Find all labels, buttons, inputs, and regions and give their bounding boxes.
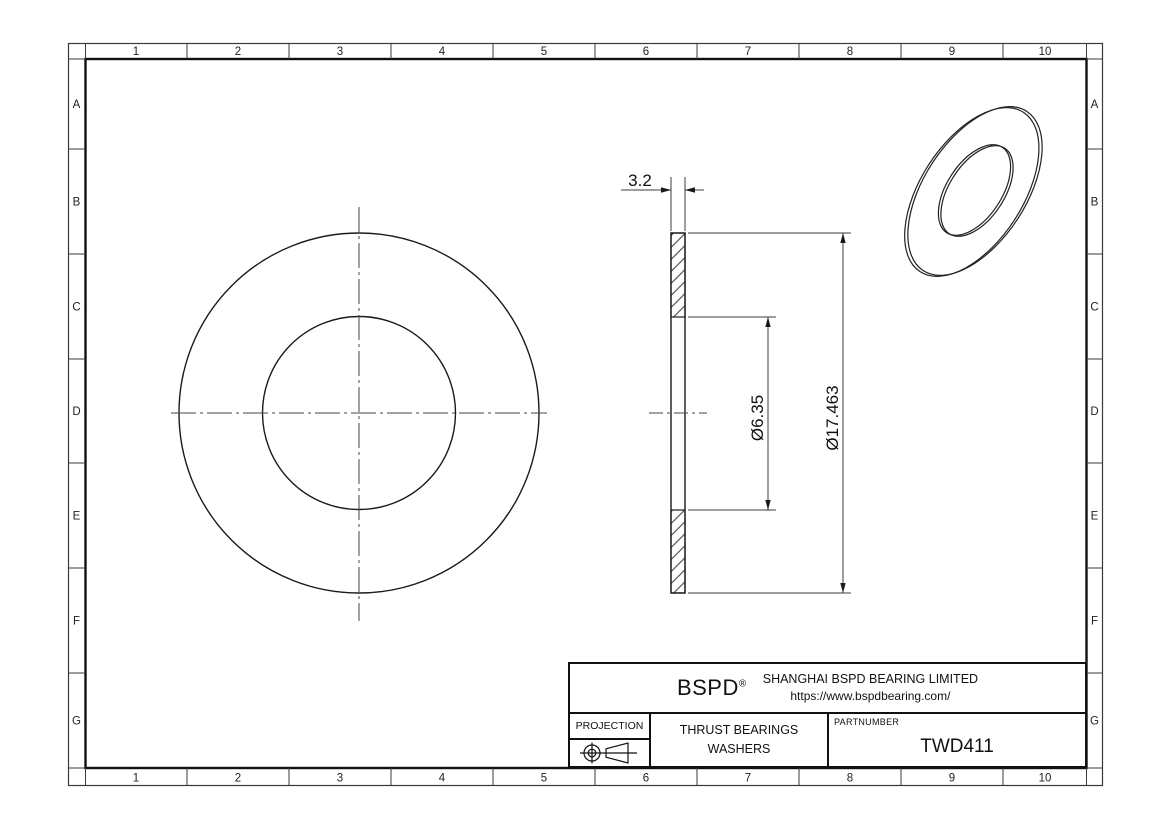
ruler-label: E	[73, 511, 81, 523]
company-name: SHANGHAI BSPD BEARING LIMITED	[763, 671, 978, 688]
ruler-label: F	[73, 616, 80, 628]
partnumber-label: PARTNUMBER	[834, 717, 899, 727]
projection-label: PROJECTION	[570, 714, 649, 740]
front-view	[171, 207, 547, 621]
registered-trademark: ®	[739, 679, 747, 690]
ruler-label: D	[1090, 406, 1098, 418]
ruler-label: B	[73, 197, 81, 209]
description-line1: THRUST BEARINGS	[680, 721, 799, 740]
bore-dimension-text: Ø6.35	[748, 395, 767, 441]
ruler-label: G	[1090, 716, 1099, 728]
ruler-label: B	[1091, 197, 1099, 209]
description-line2: WASHERS	[708, 740, 771, 759]
dimension-outer: Ø17.463	[823, 233, 846, 593]
section-view: 3.2 Ø6.35 Ø17.463	[621, 171, 851, 593]
ruler-label: C	[1090, 302, 1098, 314]
ruler-label: 6	[643, 773, 649, 785]
company-website: https://www.bspdbearing.com/	[763, 688, 978, 704]
ruler-label: C	[72, 302, 80, 314]
brand-name: BSPD	[677, 675, 739, 700]
ruler-label: D	[72, 406, 80, 418]
isometric-view	[877, 84, 1069, 300]
ruler-label: 8	[847, 46, 853, 58]
projection-cell: PROJECTION	[570, 714, 651, 766]
dimension-bore: Ø6.35	[748, 317, 771, 510]
dimension-thickness: 3.2	[621, 171, 704, 193]
ruler-label: 10	[1039, 773, 1052, 785]
company-block: SHANGHAI BSPD BEARING LIMITED https://ww…	[763, 671, 978, 704]
ruler-label: 2	[235, 773, 241, 785]
ruler-label: A	[1091, 99, 1099, 111]
ruler-label: 2	[235, 46, 241, 58]
title-block: BSPD® SHANGHAI BSPD BEARING LIMITED http…	[568, 662, 1087, 768]
ruler-top: 1 2 3 4 5 6 7 8 9 10	[133, 44, 1052, 60]
ruler-label: G	[72, 716, 81, 728]
ruler-bottom: 1 2 3 4 5 6 7 8 9 10	[133, 768, 1052, 786]
section-hatch-bottom	[671, 510, 685, 593]
ruler-label: 1	[133, 773, 139, 785]
ruler-label: 3	[337, 773, 343, 785]
ruler-label: 10	[1039, 46, 1052, 58]
outer-dimension-text: Ø17.463	[823, 385, 842, 450]
title-block-company-row: BSPD® SHANGHAI BSPD BEARING LIMITED http…	[570, 664, 1085, 714]
partnumber-cell: PARTNUMBER TWD411	[829, 714, 1085, 766]
ruler-label: F	[1091, 616, 1098, 628]
partnumber-value: TWD411	[829, 736, 1085, 758]
part-description-cell: THRUST BEARINGS WASHERS	[651, 714, 829, 766]
ruler-label: 6	[643, 46, 649, 58]
brand-logo: BSPD®	[677, 675, 747, 701]
ruler-label: 3	[337, 46, 343, 58]
ruler-label: 4	[439, 46, 446, 58]
ruler-label: 7	[745, 46, 751, 58]
ruler-label: 8	[847, 773, 853, 785]
ruler-right: A B C D E F G	[1087, 99, 1103, 728]
third-angle-projection-icon	[579, 740, 641, 766]
ruler-label: 9	[949, 46, 955, 58]
thickness-dimension-text: 3.2	[628, 171, 652, 190]
title-block-bottom-row: PROJECTION THRUST BEARINGS WA	[570, 714, 1085, 766]
ruler-label: 5	[541, 46, 547, 58]
projection-symbol	[570, 740, 649, 766]
section-hatch-top	[671, 233, 685, 317]
ruler-left: A B C D E F G	[69, 99, 86, 728]
ruler-label: 7	[745, 773, 751, 785]
ruler-label: 9	[949, 773, 955, 785]
drawing-sheet: 1 2 3 4 5 6 7 8 9 10 1 2 3 4 5	[0, 0, 1170, 827]
ruler-label: 5	[541, 773, 547, 785]
ruler-label: 4	[439, 773, 446, 785]
ruler-label: 1	[133, 46, 139, 58]
ruler-label: E	[1091, 511, 1099, 523]
ruler-label: A	[73, 99, 81, 111]
